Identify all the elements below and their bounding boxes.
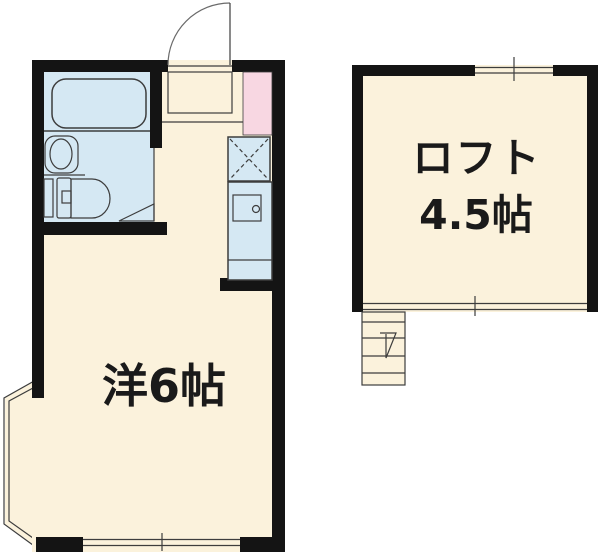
wall-bottom-right	[240, 537, 285, 552]
wall-bathroom-right	[150, 72, 162, 148]
stairs-icon	[362, 312, 405, 385]
loft-label: ロフト	[413, 134, 542, 182]
floor-plan-page: 洋6帖 ロフト 4.5帖	[0, 0, 600, 552]
loft-wall-left	[352, 65, 363, 312]
wall-bathroom-bottom	[32, 222, 167, 235]
loft-wall-top-left	[352, 65, 475, 76]
floor-plan-drawing: 洋6帖 ロフト 4.5帖	[0, 0, 600, 552]
loft-area-label: 4.5帖	[419, 191, 533, 239]
loft-floor	[352, 65, 598, 312]
refrigerator-space	[243, 72, 272, 135]
wall-right	[272, 60, 285, 552]
entrance-door-swing-arc	[168, 3, 230, 65]
main-room-label: 洋6帖	[102, 359, 226, 413]
kitchen-counter	[228, 182, 272, 280]
stove-space-box	[228, 137, 270, 181]
wall-bottom-left	[36, 537, 83, 552]
stairs-box	[362, 312, 405, 385]
loft-unit: ロフト 4.5帖	[352, 57, 598, 316]
bathroom-floor	[44, 72, 150, 222]
kitchen-counter-icon	[228, 182, 272, 280]
stove-space-icon	[228, 137, 270, 181]
main-unit: 洋6帖	[4, 3, 285, 552]
wall-top-left	[32, 60, 168, 72]
loft-wall-right	[587, 65, 598, 312]
bathroom	[44, 72, 154, 222]
